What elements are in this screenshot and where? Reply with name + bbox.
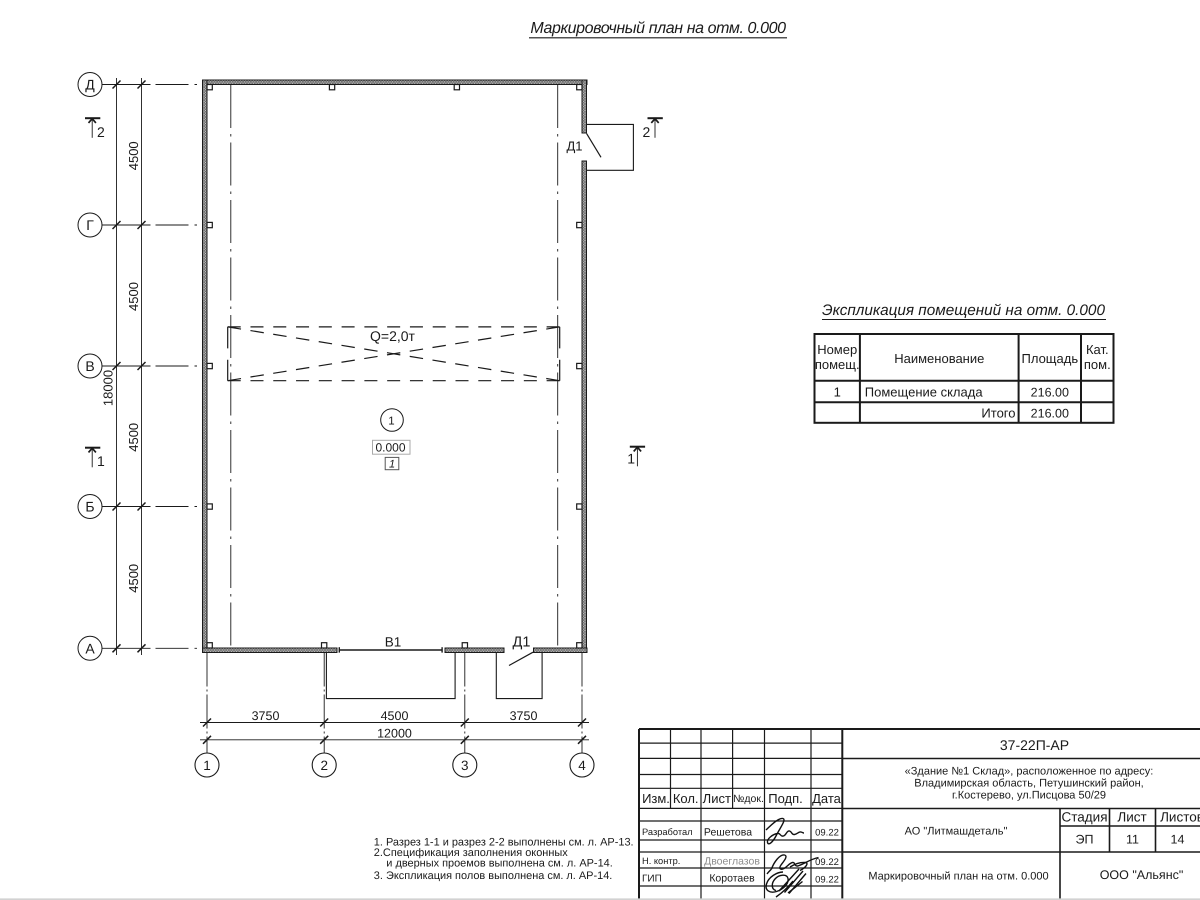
svg-text:и дверных проемов выполнена см: и дверных проемов выполнена см. л. АР-14…	[386, 857, 612, 869]
svg-text:Коротаев: Коротаев	[709, 873, 755, 885]
svg-text:пом.: пом.	[1084, 357, 1111, 372]
svg-text:АО "Литмашдеталь": АО "Литмашдеталь"	[905, 826, 1008, 838]
svg-text:4500: 4500	[126, 282, 141, 311]
svg-text:ЭП: ЭП	[1076, 833, 1094, 847]
svg-text:Лист: Лист	[1117, 810, 1146, 825]
svg-text:1: 1	[388, 415, 394, 427]
svg-text:1: 1	[203, 758, 211, 773]
svg-text:4500: 4500	[126, 423, 141, 452]
svg-text:г.Костерево, ул.Писцова 50/29: г.Костерево, ул.Писцова 50/29	[952, 789, 1106, 801]
svg-text:1: 1	[97, 453, 105, 469]
svg-text:Стадия: Стадия	[1061, 810, 1107, 825]
svg-text:Б: Б	[85, 499, 94, 515]
svg-text:4: 4	[578, 758, 586, 773]
svg-text:Двоеглазов: Двоеглазов	[704, 856, 760, 868]
svg-text:Решетова: Решетова	[704, 827, 752, 839]
svg-text:ООО "Альянс": ООО "Альянс"	[1100, 868, 1184, 882]
svg-text:3: 3	[461, 758, 469, 773]
svg-text:Маркировочный план на отм. 0.0: Маркировочный план на отм. 0.000	[530, 20, 786, 37]
svg-text:14: 14	[1171, 833, 1185, 847]
svg-text:2: 2	[643, 124, 651, 140]
svg-text:В1: В1	[385, 635, 402, 650]
svg-text:Разработал: Разработал	[642, 827, 693, 837]
svg-text:Итого: Итого	[981, 406, 1015, 421]
svg-text:Дата: Дата	[812, 791, 842, 806]
svg-text:Владимирская область, Петушинс: Владимирская область, Петушинский район,	[914, 777, 1143, 789]
svg-text:11: 11	[1126, 833, 1139, 847]
svg-text:Д: Д	[85, 77, 95, 93]
svg-text:3750: 3750	[252, 709, 280, 723]
svg-text:Наименование: Наименование	[894, 351, 984, 366]
svg-text:4500: 4500	[126, 141, 141, 170]
svg-text:Площадь: Площадь	[1022, 351, 1079, 366]
svg-text:1: 1	[389, 458, 395, 470]
svg-text:помещ.: помещ.	[815, 357, 860, 372]
svg-text:«Здание №1 Склад», расположенн: «Здание №1 Склад», расположенное по адре…	[905, 765, 1154, 777]
svg-text:1: 1	[627, 451, 635, 467]
svg-text:216.00: 216.00	[1031, 407, 1069, 421]
svg-text:3. Экспликация полов выполнена: 3. Экспликация полов выполнена см. л. АР…	[374, 870, 613, 882]
svg-text:Д1: Д1	[566, 139, 582, 154]
svg-text:Маркировочный план на отм. 0.0: Маркировочный план на отм. 0.000	[868, 871, 1048, 883]
svg-text:Листов: Листов	[1160, 810, 1200, 825]
svg-text:Кат.: Кат.	[1086, 342, 1109, 357]
svg-text:4500: 4500	[381, 709, 409, 723]
svg-text:Г: Г	[86, 217, 94, 233]
svg-text:216.00: 216.00	[1031, 386, 1069, 400]
svg-text:09.22: 09.22	[815, 875, 839, 886]
svg-text:В: В	[85, 358, 94, 374]
svg-text:Помещение склада: Помещение склада	[865, 385, 984, 400]
svg-text:18000: 18000	[101, 370, 116, 406]
svg-text:12000: 12000	[377, 726, 412, 740]
svg-text:37-22П-АР: 37-22П-АР	[1000, 737, 1069, 753]
svg-text:Изм.: Изм.	[642, 791, 670, 806]
svg-text:Н. контр.: Н. контр.	[642, 856, 680, 866]
svg-text:Кол.: Кол.	[673, 791, 699, 806]
svg-text:Подп.: Подп.	[768, 791, 803, 806]
svg-text:2: 2	[320, 758, 328, 773]
svg-text:Q=2,0т: Q=2,0т	[370, 328, 416, 344]
svg-text:А: А	[85, 640, 95, 656]
svg-text:Номер: Номер	[817, 342, 857, 357]
svg-text:2: 2	[97, 124, 105, 140]
svg-text:1: 1	[834, 385, 841, 400]
svg-text:ГИП: ГИП	[642, 874, 662, 885]
svg-text:09.22: 09.22	[815, 857, 839, 868]
svg-text:09.22: 09.22	[815, 828, 839, 839]
svg-text:Д1: Д1	[513, 635, 531, 651]
svg-text:Экспликация помещений на отм.: Экспликация помещений на отм. 0.000	[822, 302, 1105, 319]
svg-text:Лист: Лист	[703, 791, 731, 806]
svg-text:3750: 3750	[510, 709, 538, 723]
svg-text:№док.: №док.	[733, 793, 764, 805]
svg-text:4500: 4500	[126, 564, 141, 593]
svg-text:0.000: 0.000	[375, 441, 405, 455]
